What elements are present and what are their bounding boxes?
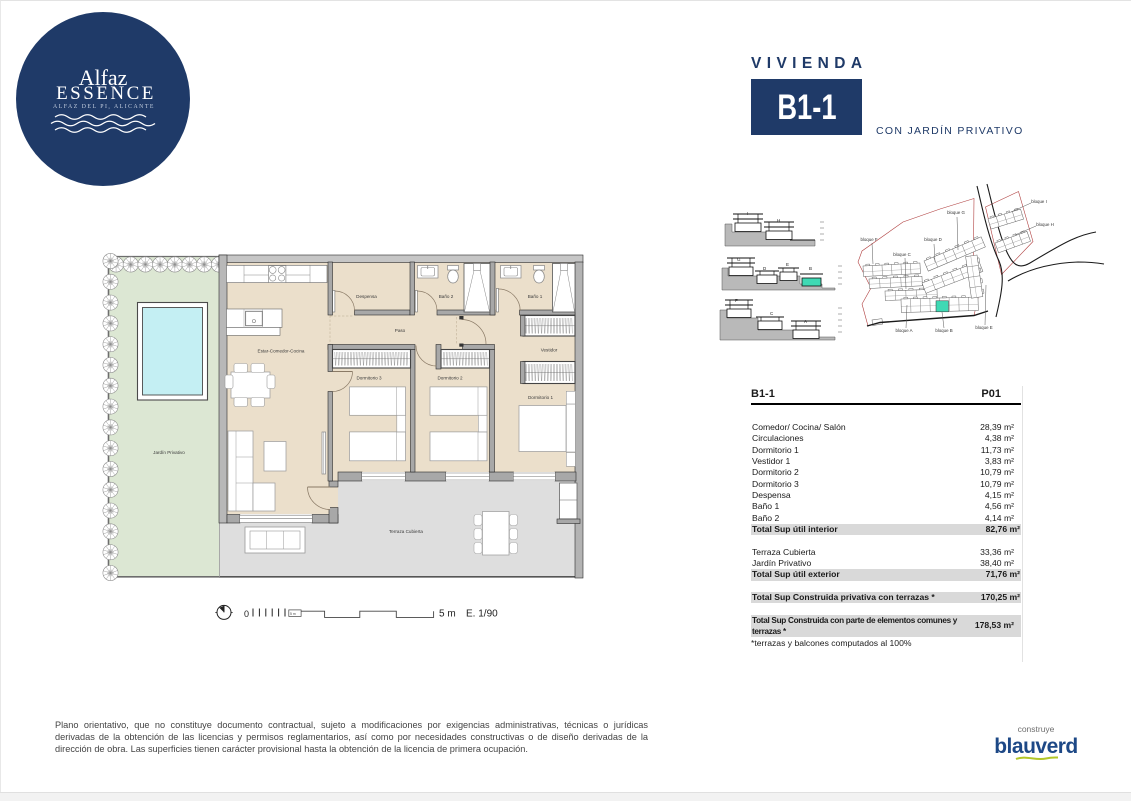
svg-text:Jardín Privativo: Jardín Privativo [153,450,185,455]
svg-text:Terraza Cubierta: Terraza Cubierta [389,529,423,534]
svg-text:E: E [786,262,789,267]
svg-text:Baño 1: Baño 1 [528,294,543,299]
svg-text:G: G [737,257,741,262]
svg-text:5 m: 5 m [439,609,456,620]
svg-text:Vestidor: Vestidor [541,348,558,353]
svg-text:A: A [804,319,807,324]
svg-text:Paso: Paso [395,328,406,333]
svg-text:I: I [747,211,748,216]
svg-text:bloque F: bloque F [860,237,877,242]
svg-text:D: D [763,266,767,271]
svg-text:B: B [809,266,812,271]
svg-text:bloque C: bloque C [893,252,911,257]
svg-text:bloque D: bloque D [924,237,942,242]
svg-text:bloque B: bloque B [935,328,952,333]
svg-text:E. 1/90: E. 1/90 [466,609,498,620]
svg-text:Dormitorio 1: Dormitorio 1 [528,395,553,400]
svg-text:H: H [777,218,780,223]
svg-text:Dormitorio 3: Dormitorio 3 [356,376,381,381]
svg-text:bloque A: bloque A [895,328,912,333]
svg-text:Dormitorio 2: Dormitorio 2 [437,376,462,381]
svg-text:bloque H: bloque H [1036,222,1054,227]
svg-text:C: C [770,311,774,316]
svg-text:bloque I: bloque I [1031,199,1047,204]
svg-text:0: 0 [244,609,249,619]
svg-text:bloque G: bloque G [947,210,965,215]
svg-text:bloque E: bloque E [975,325,992,330]
svg-text:Estar-Comedor-Cocina: Estar-Comedor-Cocina [258,349,305,354]
svg-text:Despensa: Despensa [356,294,377,299]
svg-text:Baño 2: Baño 2 [439,294,454,299]
svg-text:5 m: 5 m [290,612,296,616]
svg-text:F: F [735,298,738,303]
